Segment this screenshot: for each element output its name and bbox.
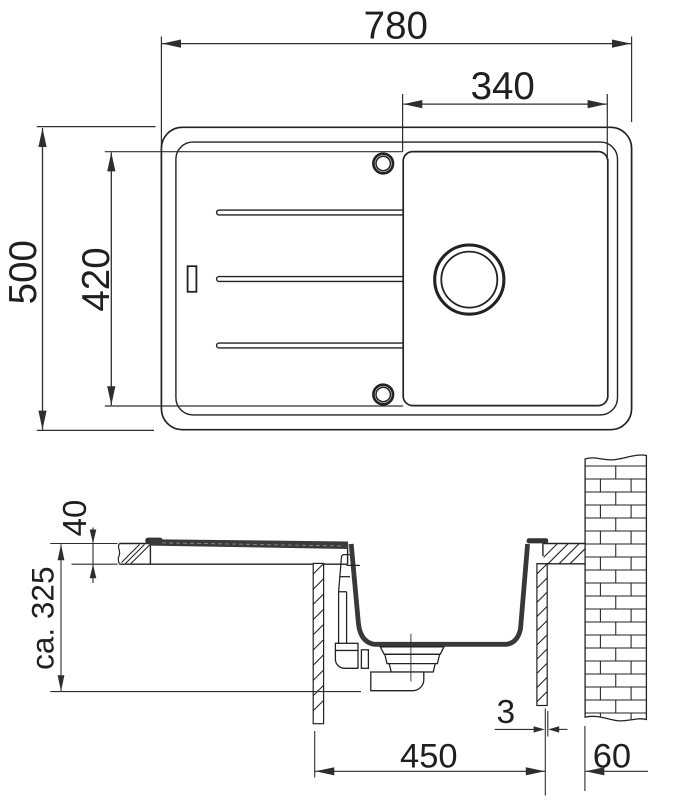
svg-text:3: 3 xyxy=(496,694,515,731)
svg-text:500: 500 xyxy=(2,240,45,304)
svg-text:60: 60 xyxy=(593,737,631,775)
svg-text:450: 450 xyxy=(400,737,458,775)
svg-text:ca. 325: ca. 325 xyxy=(25,567,61,670)
svg-text:780: 780 xyxy=(364,5,428,48)
svg-text:420: 420 xyxy=(75,247,118,311)
svg-text:40: 40 xyxy=(56,500,93,537)
svg-text:340: 340 xyxy=(471,65,535,108)
